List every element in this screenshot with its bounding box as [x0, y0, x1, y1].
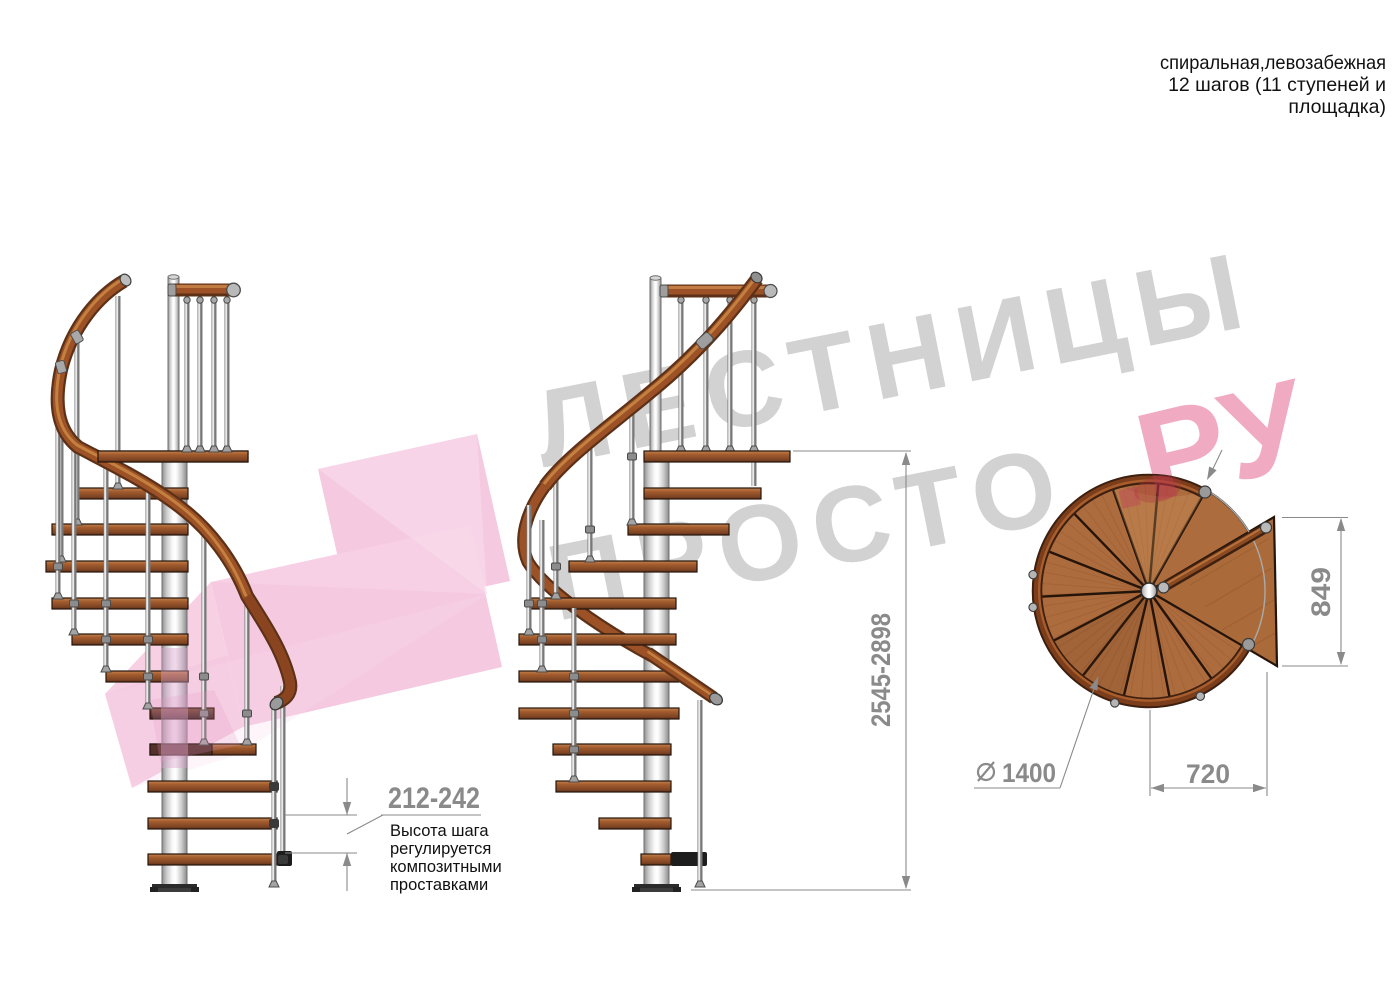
svg-text:спиральная,левозабежная: спиральная,левозабежная — [1160, 52, 1386, 74]
svg-text:212-242: 212-242 — [388, 782, 480, 815]
svg-text:Высота шага: Высота шага — [390, 822, 489, 840]
svg-text:композитными: композитными — [390, 858, 502, 876]
svg-text:849: 849 — [1306, 567, 1336, 617]
svg-text:720: 720 — [1186, 759, 1230, 789]
svg-text:проставками: проставками — [390, 876, 488, 894]
svg-text:регулируется: регулируется — [390, 840, 491, 858]
svg-text:2545-2898: 2545-2898 — [866, 613, 896, 727]
svg-text:1400: 1400 — [1002, 758, 1056, 788]
svg-text:площадка): площадка) — [1288, 96, 1386, 118]
svg-text:12 шагов (11 ступеней и: 12 шагов (11 ступеней и — [1168, 74, 1386, 96]
